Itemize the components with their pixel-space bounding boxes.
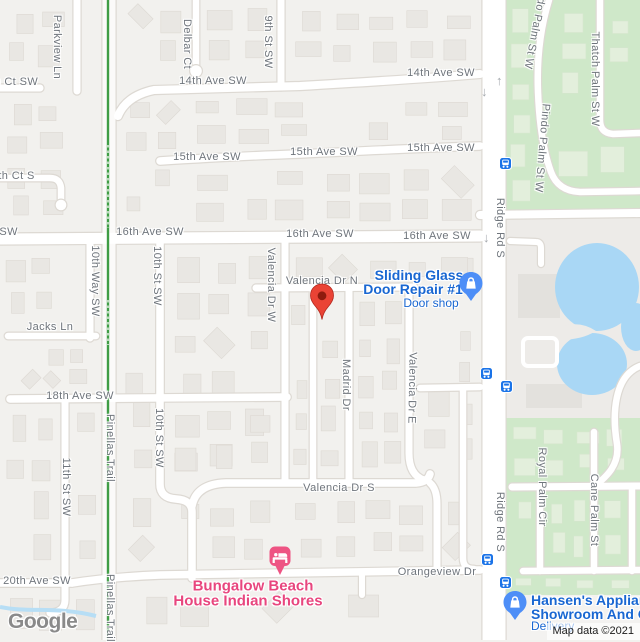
bus-stop-icon[interactable] [499, 157, 512, 175]
street-label-10th-st-sw: 10th St SW [151, 246, 163, 306]
street-label-ridge-rd-s: Ridge Rd S [494, 198, 506, 258]
street-label-14th-ct-sw: 14th Ct SW [0, 76, 38, 88]
street-label-14th-ave-sw: 14th Ave SW [407, 67, 475, 79]
poi-pin-bungalow-beach-house-bed-icon[interactable] [268, 545, 292, 581]
street-label-14th-ave-sw: 14th Ave SW [179, 75, 247, 87]
street-label-pinellas-trail: Pinellas Trail [104, 414, 116, 482]
street-label-ridge-rd-s: Ridge Rd S [494, 492, 506, 552]
street-label-valencia-dr-w: Valencia Dr W [265, 248, 277, 323]
street-label-delbar-ct: Delbar Ct [181, 19, 193, 69]
street-label-16th-ave-sw: 16th Ave SW [286, 228, 354, 240]
street-label-royal-palm-cir: Royal Palm Cir [536, 448, 548, 527]
street-label-10th-way-sw: 10th Way SW [89, 245, 101, 316]
poi-label-bungalow-beach-house[interactable]: House Indian Shores [173, 593, 322, 610]
street-label-10th-st-sw: 10th St SW [153, 408, 165, 468]
street-label-jacks-ln: Jacks Ln [27, 321, 74, 333]
bus-stop-icon[interactable] [480, 367, 493, 385]
one-way-arrow-down-icon: ↓ [481, 85, 488, 98]
google-logo[interactable]: Google [8, 610, 77, 634]
map-attribution: Map data ©2021 [547, 623, 640, 640]
street-label-cane-palm-st: Cane Palm St [588, 474, 600, 547]
street-label-parkview-ln: Parkview Ln [51, 15, 63, 79]
street-label-pinellas-trail: Pinellas Trail [104, 574, 116, 642]
street-label-valencia-dr-s: Valencia Dr S [303, 482, 375, 494]
destination-marker-icon[interactable] [307, 283, 337, 326]
bus-stop-icon[interactable] [481, 553, 494, 571]
street-label-valencia-dr-e: Valencia Dr E [405, 352, 418, 424]
street-label-madrid-dr: Madrid Dr [340, 359, 352, 411]
poi-pin-hansens-appliance-shopping-bag-icon[interactable] [502, 590, 528, 627]
street-label-16th-ave-sw: 16th Ave SW [403, 230, 471, 242]
poi-pin-sliding-glass-door-repair-shopping-bag-icon[interactable] [458, 271, 484, 308]
street-label-20th-ave-sw: 20th Ave SW [3, 575, 71, 587]
one-way-arrow-down-icon: ↓ [483, 231, 490, 244]
map-canvas[interactable]: 14th Ct SW15th Ct S14th Ave SW14th Ave S… [0, 0, 640, 640]
one-way-arrow-up-icon: ↑ [496, 74, 503, 87]
poi-sublabel-sliding-glass-door-repair[interactable]: Door shop [403, 296, 458, 310]
bus-stop-icon[interactable] [500, 380, 513, 398]
street-label-orangeview-dr: Orangeview Dr [398, 566, 477, 578]
large-building [518, 274, 560, 318]
street-label-15th-ct-s: 15th Ct S [0, 170, 35, 182]
street-label-15th-ave-sw: 15th Ave SW [290, 146, 358, 158]
bus-stop-icon[interactable] [499, 576, 512, 594]
street-label-15th-ave-sw: 15th Ave SW [173, 151, 241, 163]
street-label-16th-ave-sw: 16th Ave SW [116, 226, 184, 238]
street-label-18th-ave-sw: 18th Ave SW [46, 390, 114, 402]
street-label-thatch-palm-st-w: Thatch Palm St W [589, 31, 601, 126]
street-label-11th-st-sw: 11th St SW [60, 458, 72, 517]
street-label-9th-st-sw: 9th St SW [262, 15, 274, 68]
street-label-16th-ave-sw: 16th Ave SW [0, 226, 18, 238]
poi-label-sliding-glass-door-repair[interactable]: Door Repair #1 [363, 281, 463, 297]
street-label-15th-ave-sw: 15th Ave SW [407, 142, 475, 154]
